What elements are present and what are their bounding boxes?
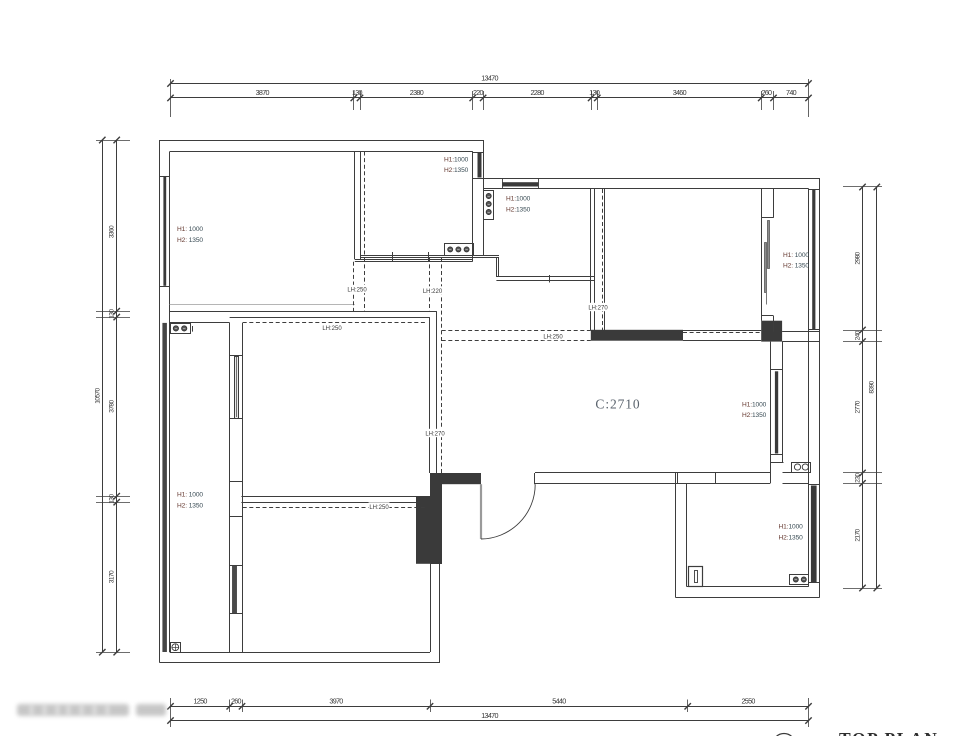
- svg-text:LH:250: LH:250: [369, 505, 389, 511]
- svg-text:2980: 2980: [854, 251, 861, 264]
- svg-text:LH:250: LH:250: [322, 326, 342, 332]
- svg-text:LH:270: LH:270: [588, 305, 608, 311]
- svg-text:H2: 1350: H2: 1350: [783, 263, 809, 270]
- svg-text:13470: 13470: [481, 74, 498, 83]
- svg-text:2550: 2550: [741, 696, 755, 705]
- svg-text:H1: 1000: H1: 1000: [177, 492, 203, 499]
- svg-text:C:2710: C:2710: [595, 397, 640, 412]
- svg-text:130: 130: [109, 309, 116, 319]
- svg-text:3360: 3360: [109, 225, 116, 238]
- svg-text:240: 240: [854, 330, 861, 340]
- svg-text:220: 220: [473, 88, 484, 97]
- svg-text:H2:1350: H2:1350: [506, 206, 531, 213]
- svg-text:3460: 3460: [673, 88, 687, 97]
- svg-text:2380: 2380: [410, 88, 424, 97]
- svg-text:3970: 3970: [329, 696, 343, 705]
- svg-text:3870: 3870: [256, 88, 270, 97]
- svg-text:LH:250: LH:250: [347, 287, 367, 293]
- svg-text:2770: 2770: [854, 400, 861, 413]
- svg-text:H1: 1000: H1: 1000: [783, 252, 809, 259]
- svg-text:130: 130: [589, 88, 600, 97]
- svg-text:LH:250: LH:250: [543, 334, 563, 340]
- svg-text:2170: 2170: [854, 528, 861, 541]
- svg-text:5440: 5440: [552, 696, 566, 705]
- svg-text:260: 260: [231, 696, 242, 705]
- svg-text:H1:1000: H1:1000: [444, 156, 469, 163]
- svg-text:H1:1000: H1:1000: [742, 401, 767, 408]
- svg-text:740: 740: [786, 88, 797, 97]
- svg-text:TOP PLAN: TOP PLAN: [839, 729, 939, 736]
- svg-text:10570: 10570: [95, 388, 102, 404]
- svg-text:H1:1000: H1:1000: [779, 524, 804, 531]
- svg-text:13470: 13470: [481, 711, 498, 720]
- svg-text:2280: 2280: [530, 88, 544, 97]
- svg-text:130: 130: [352, 88, 363, 97]
- svg-text:260: 260: [761, 88, 772, 97]
- svg-text:1250: 1250: [193, 696, 207, 705]
- svg-text:230: 230: [854, 473, 861, 483]
- svg-text:H1:1000: H1:1000: [506, 196, 531, 203]
- svg-text:H2:1350: H2:1350: [779, 534, 804, 541]
- svg-text:LH:270: LH:270: [425, 431, 445, 437]
- svg-text:H2: 1350: H2: 1350: [177, 237, 203, 244]
- svg-text:H2: 1350: H2: 1350: [177, 502, 203, 509]
- svg-text:H2:1350: H2:1350: [444, 167, 469, 174]
- svg-text:H1: 1000: H1: 1000: [177, 226, 203, 233]
- svg-text:H2:1350: H2:1350: [742, 412, 767, 419]
- svg-text:3170: 3170: [109, 570, 116, 583]
- svg-text:130: 130: [109, 494, 116, 504]
- svg-text:3780: 3780: [109, 400, 116, 413]
- svg-text:8390: 8390: [869, 380, 876, 393]
- svg-text:LH:220: LH:220: [423, 289, 443, 295]
